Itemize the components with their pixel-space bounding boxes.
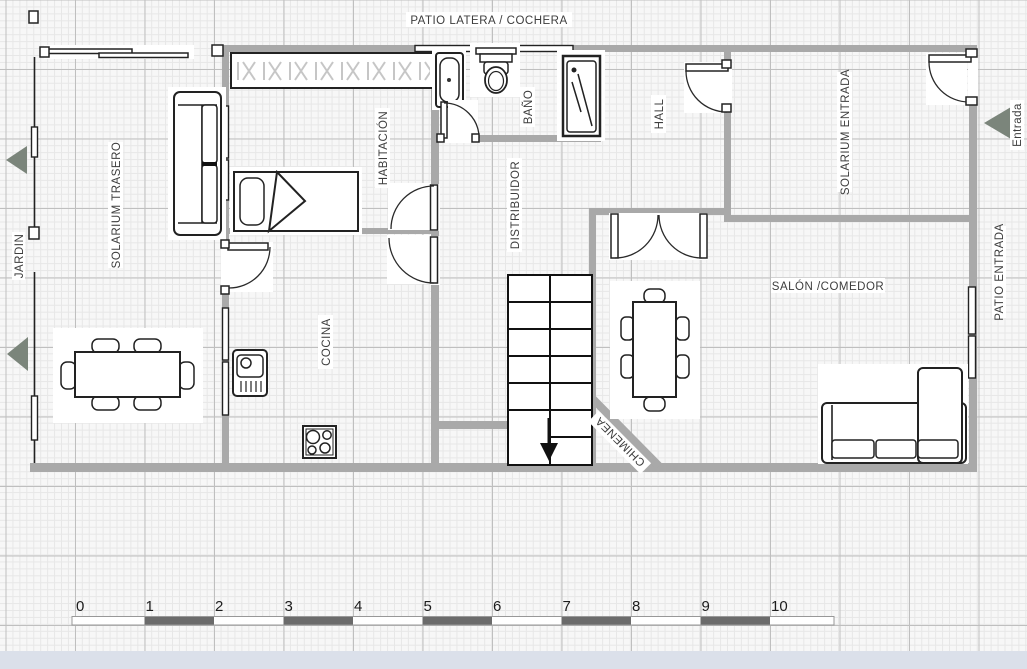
label-solarium-entrada: SOLARIUM ENTRADA: [837, 69, 852, 195]
ruler-number: 1: [146, 598, 154, 615]
entry-arrow-icon: [7, 337, 28, 371]
svg-text:SALÓN /COMEDOR: SALÓN /COMEDOR: [772, 280, 884, 293]
label-salon-comedor: SALÓN /COMEDOR: [771, 278, 885, 293]
ruler-number: 5: [424, 598, 432, 615]
dining-table: [53, 328, 203, 423]
scale-ruler: 0 1 2 3 4 5 6 7 8 9 10: [72, 598, 834, 625]
label-patio-lateral: PATIO LATERA / COCHERA: [406, 12, 572, 27]
svg-text:HABITACIÓN: HABITACIÓN: [377, 111, 390, 185]
floor-plan-canvas[interactable]: PATIO LATERA / COCHERA SOLARIUM TRASERO …: [0, 0, 1027, 669]
salon-double-door: [609, 213, 708, 260]
label-jardin: JARDIN: [12, 232, 26, 280]
label-habitacion: HABITACIÓN: [375, 108, 390, 188]
shower: [557, 50, 605, 141]
window: [32, 127, 38, 157]
svg-text:COCINA: COCINA: [321, 318, 333, 366]
toilet: [470, 43, 520, 97]
ruler-number: 3: [285, 598, 293, 615]
ruler-number: 4: [354, 598, 362, 615]
stove: [303, 426, 336, 458]
chair: [92, 339, 119, 353]
loveseat-sofa: [168, 87, 226, 240]
svg-text:SOLARIUM TRASERO: SOLARIUM TRASERO: [111, 142, 123, 269]
kitchen-door: [387, 235, 438, 284]
chair: [92, 396, 119, 410]
ruler-number: 2: [215, 598, 223, 615]
entry-arrow-icon: [984, 107, 1011, 139]
label-patio-entrada: PATIO ENTRADA: [992, 223, 1006, 320]
svg-text:HALL: HALL: [654, 99, 666, 130]
entry-arrow-icon: [6, 146, 27, 174]
chair: [644, 289, 665, 303]
wall-post: [29, 227, 39, 239]
svg-text:PATIO LATERA / COCHERA: PATIO LATERA / COCHERA: [410, 15, 567, 27]
label-bano: BAÑO: [520, 87, 535, 127]
dining-table-salon: [610, 281, 700, 419]
single-bed: [230, 167, 362, 235]
chair: [676, 317, 689, 340]
svg-text:PATIO ENTRADA: PATIO ENTRADA: [994, 223, 1006, 320]
ruler-number: 10: [771, 598, 788, 615]
kitchen-sink: [233, 350, 267, 396]
chair: [676, 355, 689, 378]
chair: [644, 397, 665, 411]
ruler-number: 8: [632, 598, 640, 615]
chair: [179, 362, 194, 389]
bottom-frame: [0, 651, 1027, 669]
chair: [134, 339, 161, 353]
column-post: [29, 11, 38, 23]
wardrobe: [231, 53, 433, 88]
ruler-number: 7: [563, 598, 571, 615]
svg-text:Entrada: Entrada: [1012, 103, 1024, 147]
label-solarium-trasero: SOLARIUM TRASERO: [108, 142, 123, 269]
ruler-number: 0: [76, 598, 84, 615]
label-distribuidor: DISTRIBUIDOR: [507, 158, 522, 252]
label-hall: HALL: [651, 95, 666, 133]
bedroom-door: [388, 183, 438, 230]
svg-text:BAÑO: BAÑO: [522, 90, 535, 125]
ruler-number: 6: [493, 598, 501, 615]
staircase: [508, 275, 592, 465]
svg-text:DISTRIBUIDOR: DISTRIBUIDOR: [510, 161, 522, 249]
glass-wall-left: [29, 57, 39, 463]
chair: [61, 362, 76, 389]
sliding-door: [40, 45, 223, 59]
svg-text:JARDIN: JARDIN: [14, 234, 26, 279]
svg-text:SOLARIUM ENTRADA: SOLARIUM ENTRADA: [840, 69, 852, 195]
label-entrada: Entrada: [1010, 100, 1024, 150]
chair: [134, 396, 161, 410]
ruler-number: 9: [702, 598, 710, 615]
window: [32, 396, 38, 440]
sectional-sofa: [818, 364, 968, 464]
floor-plan-drawing: PATIO LATERA / COCHERA SOLARIUM TRASERO …: [0, 0, 1027, 669]
label-cocina: COCINA: [318, 315, 333, 369]
